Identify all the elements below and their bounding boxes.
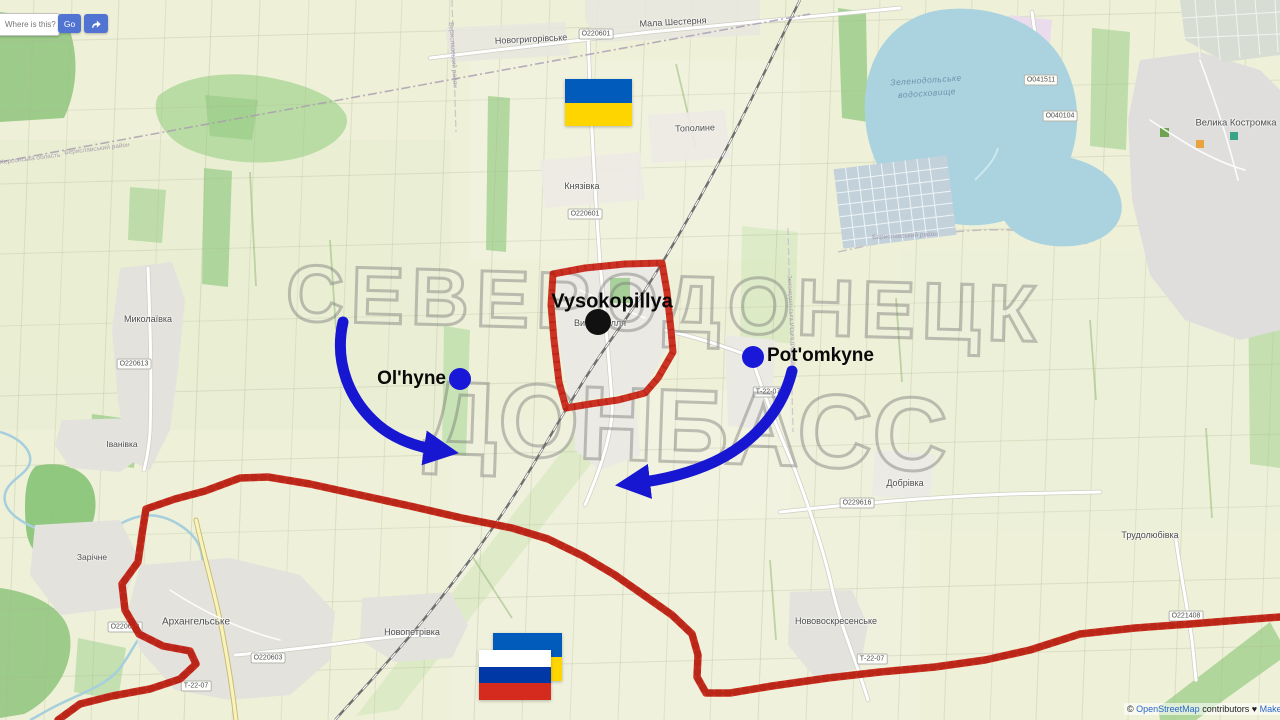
ui-layer: Go © OpenStreetMap contributors ♥ Make a…	[0, 0, 1280, 720]
map-canvas[interactable]: НовогригорівськеМала ШестерняТополинеКня…	[0, 0, 1280, 720]
contributors-text: contributors	[1200, 704, 1252, 714]
go-button[interactable]: Go	[58, 14, 81, 33]
attribution: © OpenStreetMap contributors ♥ Make a Do…	[1124, 703, 1280, 715]
heart-icon: ♥	[1252, 704, 1260, 714]
donate-link[interactable]: Make a Donation	[1260, 704, 1280, 714]
directions-arrow-icon	[90, 18, 102, 30]
openstreetmap-link[interactable]: OpenStreetMap	[1136, 704, 1200, 714]
search-input[interactable]	[0, 19, 59, 30]
search-box	[0, 13, 60, 36]
copyright-symbol: ©	[1127, 704, 1136, 714]
directions-button[interactable]	[84, 14, 108, 33]
